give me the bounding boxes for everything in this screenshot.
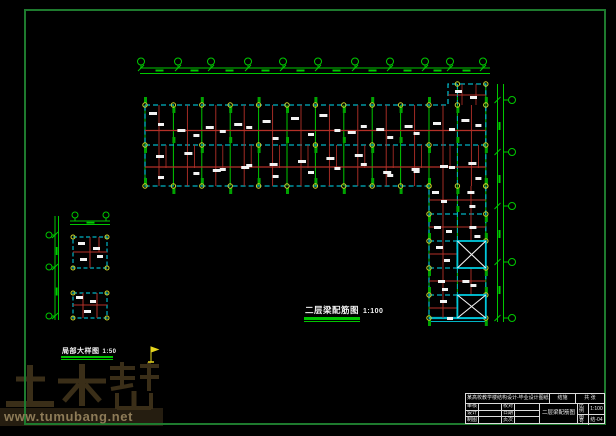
- watermark-url: www.tumubang.net: [4, 409, 133, 424]
- sig-value: [515, 411, 539, 417]
- title-block-scale-row: 比例 1:100: [578, 404, 604, 415]
- sig-label: 设计: [466, 411, 479, 417]
- drawing-canvas: [0, 0, 616, 436]
- sig-value: [515, 404, 539, 410]
- title-block-drawing-name: 二层梁配筋图: [540, 404, 578, 423]
- title-block-project: 某高校教学楼结构设计-毕业设计图纸: [466, 394, 550, 403]
- main-title-underline: [304, 317, 360, 320]
- sig-label: 页次: [502, 417, 515, 423]
- detail-title-text: 局部大样图: [62, 348, 100, 355]
- detail-title-underline-thin: [61, 359, 113, 360]
- title-block-sig-row: 设计 日期: [466, 411, 539, 418]
- stair-opening-x: [457, 241, 485, 318]
- yellow-flag-marker: [148, 347, 158, 362]
- cad-sheet: 二层梁配筋图1:100 局部大样图1:50 www.tumubang.net 某…: [0, 0, 616, 436]
- beam-plan: [143, 82, 488, 326]
- dimension-chains: [46, 58, 516, 322]
- title-block-sig-row: 制图 页次: [466, 417, 539, 423]
- detail-grids: [71, 235, 109, 320]
- border-frame: [25, 10, 605, 424]
- title-block-scale-no: 比例 1:100 图号 结-04: [578, 404, 604, 423]
- sig-label: 校对: [502, 404, 515, 410]
- scale-label: 比例: [578, 404, 589, 414]
- title-block-sig-row: 审核 校对: [466, 404, 539, 411]
- drawing-no-label: 图号: [578, 415, 589, 425]
- title-block-number-row: 图号 结-04: [578, 415, 604, 425]
- title-block-signatures: 审核 校对 设计 日期 制图 页次: [466, 404, 540, 423]
- main-title-scale: 1:100: [363, 308, 383, 315]
- main-title-text: 二层梁配筋图: [305, 305, 359, 315]
- detail-drawing-title: 局部大样图1:50: [62, 346, 117, 356]
- scale-value: 1:100: [589, 404, 604, 414]
- sig-value: [479, 404, 502, 410]
- title-block-discipline: 结施: [550, 394, 576, 403]
- sig-value: [515, 417, 539, 423]
- sig-label: 审核: [466, 404, 479, 410]
- sig-value: [479, 411, 502, 417]
- drawing-no-value: 结-04: [589, 415, 604, 425]
- title-block-row-top: 某高校教学楼结构设计-毕业设计图纸 结施 共 张: [466, 394, 604, 404]
- main-title-underline-thin: [304, 321, 360, 322]
- title-block-row-bottom: 审核 校对 设计 日期 制图 页次 二层梁配筋图: [466, 404, 604, 423]
- sig-label: 制图: [466, 417, 479, 423]
- title-block: 某高校教学楼结构设计-毕业设计图纸 结施 共 张 审核 校对 设计 日期: [465, 393, 605, 424]
- title-block-sheet-count: 共 张: [576, 394, 604, 403]
- detail-title-underline: [61, 356, 113, 358]
- main-drawing-title: 二层梁配筋图1:100: [305, 304, 383, 316]
- detail-title-scale: 1:50: [103, 349, 117, 355]
- sig-label: 日期: [502, 411, 515, 417]
- sig-value: [479, 417, 502, 423]
